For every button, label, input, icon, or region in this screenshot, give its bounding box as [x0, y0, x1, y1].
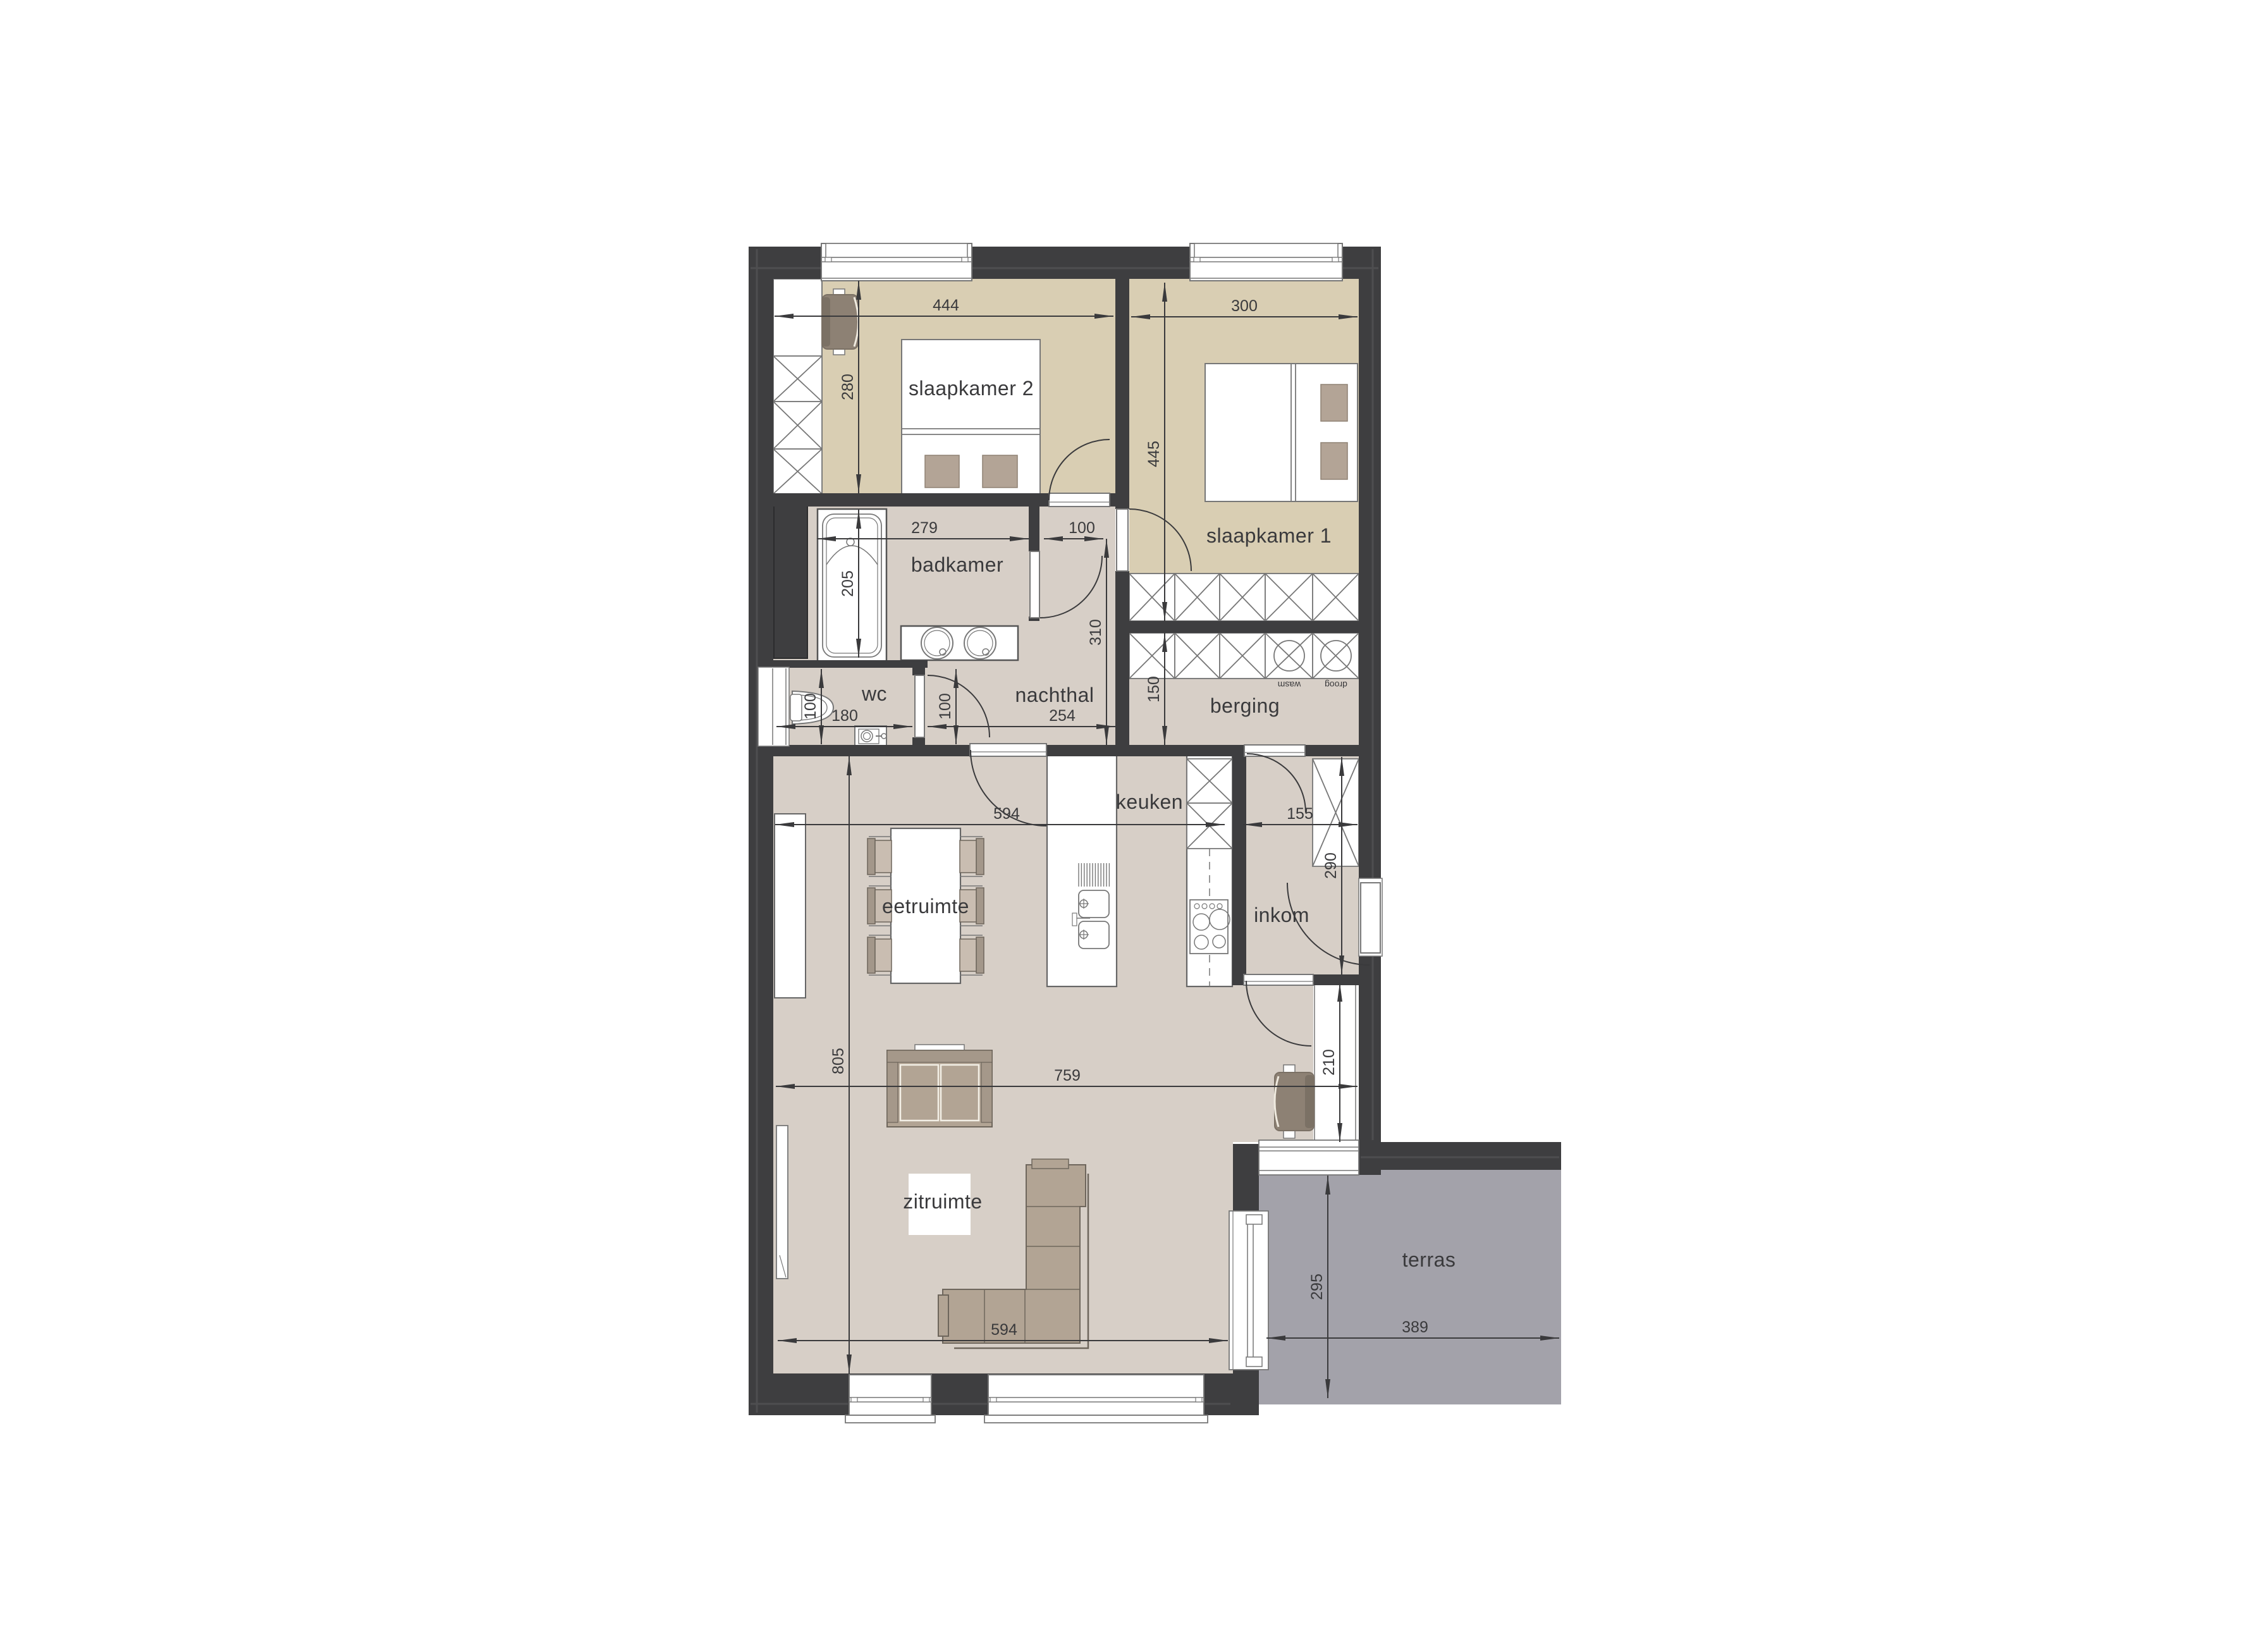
svg-text:zitruimte: zitruimte	[903, 1190, 982, 1213]
svg-text:badkamer: badkamer	[911, 553, 1003, 576]
svg-text:150: 150	[1145, 676, 1163, 703]
svg-text:terras: terras	[1402, 1248, 1456, 1271]
svg-text:310: 310	[1087, 619, 1105, 646]
svg-text:100: 100	[802, 693, 819, 720]
svg-text:droog: droog	[1325, 680, 1347, 690]
svg-text:100: 100	[936, 693, 954, 720]
svg-text:279: 279	[911, 519, 938, 537]
svg-text:slaapkamer 1: slaapkamer 1	[1206, 524, 1332, 547]
svg-text:keuken: keuken	[1116, 790, 1183, 813]
svg-text:444: 444	[933, 297, 959, 314]
svg-text:slaapkamer 2: slaapkamer 2	[909, 377, 1034, 400]
svg-text:445: 445	[1145, 441, 1163, 467]
svg-text:berging: berging	[1210, 694, 1280, 717]
svg-text:805: 805	[830, 1048, 847, 1074]
svg-text:155: 155	[1287, 805, 1313, 823]
svg-text:594: 594	[991, 1321, 1017, 1339]
svg-text:594: 594	[993, 805, 1020, 823]
svg-text:300: 300	[1231, 297, 1258, 315]
svg-text:280: 280	[839, 374, 857, 400]
svg-text:180: 180	[831, 707, 858, 725]
svg-text:295: 295	[1308, 1274, 1326, 1300]
svg-text:100: 100	[1069, 519, 1095, 537]
svg-text:inkom: inkom	[1254, 904, 1309, 926]
svg-text:759: 759	[1054, 1067, 1081, 1084]
svg-text:389: 389	[1402, 1318, 1428, 1336]
svg-text:wc: wc	[861, 682, 887, 705]
svg-text:eetruimte: eetruimte	[882, 895, 969, 918]
svg-text:nachthal: nachthal	[1015, 684, 1094, 706]
svg-text:290: 290	[1322, 852, 1340, 879]
svg-text:wasm: wasm	[1278, 680, 1302, 690]
svg-text:254: 254	[1049, 707, 1076, 725]
svg-text:205: 205	[839, 570, 857, 597]
svg-text:210: 210	[1320, 1049, 1338, 1076]
